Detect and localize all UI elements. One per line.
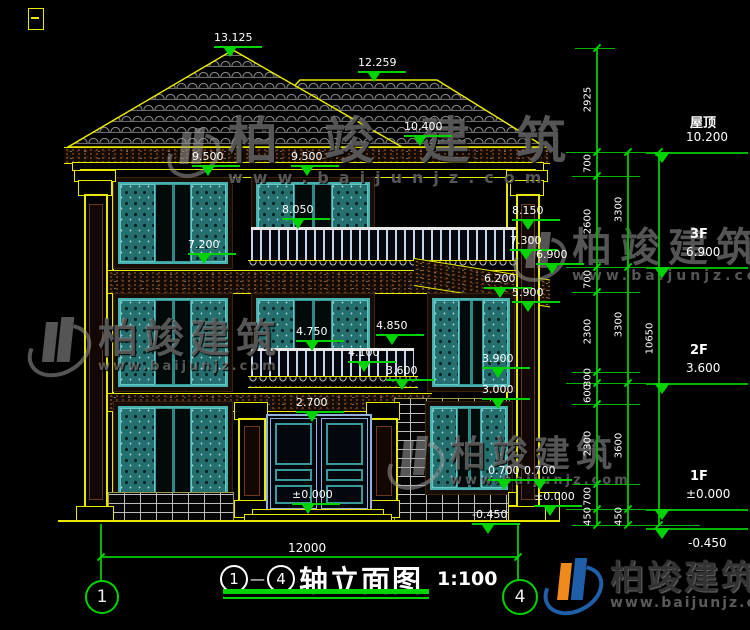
elevation-marker-line (188, 253, 236, 255)
corner-mark (28, 8, 44, 30)
window-1f-left (118, 406, 228, 496)
dim-value: 10650 (645, 318, 656, 358)
dim-value: 3300 (614, 305, 625, 345)
level-label: 1F (690, 469, 708, 484)
elevation-marker: 12.259 (358, 57, 406, 73)
elevation-marker: 13.125 (214, 32, 262, 48)
elevation-marker-line (296, 411, 344, 413)
title-scale: 1:100 (437, 568, 497, 590)
elevation-marker-triangle (482, 525, 494, 534)
dim-value: 3300 (614, 189, 625, 229)
axis-extension-right (517, 524, 519, 580)
elevation-marker-triangle (202, 167, 214, 176)
axis-extension-left (100, 524, 102, 580)
elevation-value: 6.900 (536, 249, 584, 261)
elevation-marker-triangle (494, 289, 506, 298)
elevation-marker-line (291, 165, 339, 167)
elevation-marker: 3.000 (482, 384, 530, 400)
elevation-marker-triangle (492, 369, 504, 378)
elevation-value: 9.500 (192, 151, 240, 163)
elevation-marker: 6.900 (536, 249, 584, 265)
elevation-marker-line (214, 46, 262, 48)
elevation-value: 4.750 (296, 326, 344, 338)
level-value: 10.200 (686, 130, 728, 144)
elevation-marker-triangle (306, 413, 318, 422)
elevation-marker-line (472, 523, 520, 525)
elevation-value: 5.900 (512, 287, 560, 299)
elevation-value: 8.050 (282, 204, 330, 216)
dim-value: 2300 (583, 424, 594, 464)
elevation-marker-line (404, 135, 452, 137)
elevation-marker-triangle (520, 251, 532, 260)
baijun-logo-icon (26, 314, 90, 378)
elevation-marker-line (482, 398, 530, 400)
elevation-marker: 4.750 (296, 326, 344, 342)
dim-value: 2925 (583, 80, 594, 120)
elevation-marker: 5.900 (512, 287, 560, 303)
elevation-value: 3.000 (482, 384, 530, 396)
elevation-marker-line (534, 505, 582, 507)
elevation-marker: 4.100 (348, 347, 396, 363)
level-value: 3.600 (686, 361, 720, 375)
elevation-marker-line (512, 219, 560, 221)
level-value: -0.450 (688, 536, 727, 550)
watermark-left: 柏竣建筑 www.baijunjz.com (26, 314, 282, 378)
pilaster-panel (244, 426, 260, 496)
shutter-left (120, 408, 155, 494)
glass (155, 184, 191, 262)
baijun-logo-icon (386, 434, 442, 490)
elevation-marker-line (296, 340, 344, 342)
dim-value: 600 (583, 373, 594, 413)
dim-chain-line (627, 152, 629, 525)
shutter-right (191, 408, 226, 494)
elevation-marker-triangle (198, 255, 210, 264)
elevation-marker-line (282, 218, 330, 220)
elevation-marker-line (376, 334, 424, 336)
elevation-marker-triangle (302, 505, 314, 514)
watermark-url: www.baijunjz.com (98, 359, 282, 374)
elevation-marker: 9.500 (291, 151, 339, 167)
level-value: 6.900 (686, 245, 720, 259)
elevation-value: 6.200 (484, 273, 532, 285)
elevation-value: ±0.000 (292, 489, 340, 501)
level-label: 屋顶 (690, 112, 716, 131)
elevation-marker: 2.700 (296, 397, 344, 413)
level-triangle (654, 152, 670, 163)
level-triangle (654, 267, 670, 278)
elevation-value: 12.259 (358, 57, 406, 69)
title-underline-thin (223, 597, 429, 599)
elevation-value: 4.850 (376, 320, 424, 332)
brand-name: 柏竣建筑 (610, 558, 750, 598)
elevation-marker-line (348, 361, 396, 363)
elevation-marker-triangle (224, 48, 236, 57)
elevation-value: 9.500 (291, 151, 339, 163)
shutter-left (434, 300, 459, 385)
elevation-marker-line (192, 165, 240, 167)
shutter-right (332, 184, 368, 229)
title-underline-thick (223, 589, 429, 594)
level-triangle (654, 509, 670, 520)
elevation-marker-triangle (492, 400, 504, 409)
elevation-marker: 8.050 (282, 204, 330, 220)
elevation-marker-line (358, 71, 406, 73)
watermark-brand: 柏竣建筑 (98, 316, 282, 362)
elevation-marker: 9.500 (192, 151, 240, 167)
pilaster-left (238, 418, 266, 504)
elevation-marker-triangle (522, 303, 534, 312)
dim-value: 3600 (614, 426, 625, 466)
level-label: 3F (690, 227, 708, 242)
elevation-marker: 10.400 (404, 121, 452, 137)
elevation-marker-triangle (522, 221, 534, 230)
elevation-marker-line (524, 479, 572, 481)
elevation-value: 2.700 (296, 397, 344, 409)
elevation-value: -0.450 (472, 509, 520, 521)
elevation-marker-line (536, 263, 584, 265)
elevation-marker-line (386, 379, 434, 381)
elevation-marker: ±0.000 (534, 491, 582, 507)
dim-value: 450 (614, 497, 625, 537)
elevation-marker: 7.200 (188, 239, 236, 255)
elevation-marker: 8.150 (512, 205, 560, 221)
level-triangle (654, 383, 670, 394)
elevation-value: 7.200 (188, 239, 236, 251)
elevation-marker-line (482, 367, 530, 369)
elevation-marker-triangle (358, 363, 370, 372)
brand-url: www.baijunjz.com (610, 595, 750, 611)
elevation-marker-triangle (396, 381, 408, 390)
elevation-marker-triangle (292, 220, 304, 229)
shutter-right (332, 300, 368, 350)
dim-value: 450 (583, 497, 594, 537)
elevation-value: 8.150 (512, 205, 560, 217)
elevation-marker-triangle (498, 481, 510, 490)
elevation-value: 0.700 (524, 465, 572, 477)
watermark-url: www.baijunjz.com (228, 168, 612, 187)
elevation-marker-triangle (414, 137, 426, 146)
elevation-marker: 4.850 (376, 320, 424, 336)
elevation-marker-line (292, 503, 340, 505)
dim-value: 2300 (583, 312, 594, 352)
axis-bubble-1: 1 (85, 580, 119, 614)
dim-value: 700 (583, 144, 594, 184)
dim-chain-line (658, 152, 660, 525)
elevation-marker-triangle (368, 73, 380, 82)
elevation-marker-triangle (306, 342, 318, 351)
elevation-marker: 3.600 (386, 365, 434, 381)
elevation-value: 4.100 (348, 347, 396, 359)
elevation-marker-triangle (386, 336, 398, 345)
elevation-value: 13.125 (214, 32, 262, 44)
elevation-marker-triangle (544, 507, 556, 516)
elevation-value: 7.300 (510, 235, 558, 247)
level-label: 2F (690, 343, 708, 358)
level-value: ±0.000 (686, 487, 730, 501)
shutter-left (120, 184, 155, 262)
elevation-marker-line (512, 301, 560, 303)
dim-value: 700 (583, 259, 594, 299)
elevation-value: 10.400 (404, 121, 452, 133)
dim-chain-line (596, 48, 598, 525)
baijun-logo-icon (542, 556, 602, 616)
elevation-marker-triangle (301, 167, 313, 176)
brick-base-left (108, 492, 234, 522)
corner-mark-line (31, 17, 39, 19)
brand-logo-block: 柏竣建筑 www.baijunjz.com (542, 556, 750, 616)
glass (459, 300, 483, 385)
elevation-marker-triangle (546, 265, 558, 274)
glass (155, 408, 191, 494)
elevation-marker-triangle (534, 481, 546, 490)
elevation-value: ±0.000 (534, 491, 582, 503)
elevation-marker: -0.450 (472, 509, 520, 525)
title-dash: — (250, 570, 265, 588)
elevation-marker: 0.700 (524, 465, 572, 481)
elevation-value: 3.900 (482, 353, 530, 365)
cad-elevation-drawing: 柏竣建筑 www.baijunjz.com 柏竣建筑 www.baijunjz.… (0, 0, 750, 630)
axis-bubble-4: 4 (502, 579, 538, 615)
elevation-marker: ±0.000 (292, 489, 340, 505)
level-triangle (654, 528, 670, 539)
elevation-value: 3.600 (386, 365, 434, 377)
elevation-marker: 3.900 (482, 353, 530, 369)
dim-value: 2600 (583, 201, 594, 241)
overall-width-dim: 12000 (288, 541, 326, 555)
